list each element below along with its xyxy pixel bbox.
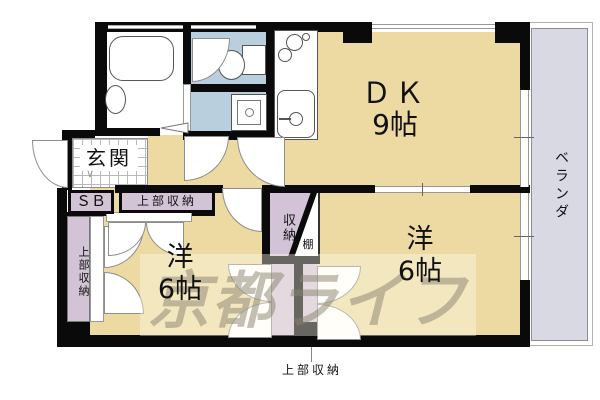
entrance-step-mark: ∨ — [82, 168, 98, 180]
shelf-label: 棚 — [299, 239, 317, 251]
wall-bath-toilet — [183, 22, 191, 84]
bath-basin — [105, 85, 126, 114]
upper-storage-left-label: 上部収納 — [68, 224, 89, 320]
wall-top-pier-left — [343, 32, 372, 43]
bathtub — [109, 36, 174, 81]
bathroom-door-icon — [158, 120, 190, 136]
dk-room-size: 9帖 — [330, 110, 460, 140]
wall-top-pier-right — [495, 32, 523, 43]
dk-top-window — [372, 24, 495, 29]
wall-bath-bottom — [95, 128, 160, 136]
veranda-label: ベランダ — [548, 126, 568, 246]
stove-pilot — [302, 33, 310, 41]
west-left-size: 6帖 — [130, 276, 230, 305]
sink-faucet — [289, 112, 303, 126]
wall-toilet-laundry — [191, 84, 268, 92]
bathroom-top-window — [108, 25, 256, 29]
wall-center-column-left — [262, 188, 270, 264]
window-tick-dk — [514, 137, 534, 138]
wall-right-upper — [520, 22, 530, 90]
west-right-label: 洋 — [370, 226, 470, 255]
sliding-door-tick — [422, 183, 423, 196]
window-tick-bedroom — [514, 236, 534, 237]
shoe-box: ＳＢ — [68, 190, 114, 214]
upper-storage-bottom-label: 上部収納 — [262, 364, 362, 377]
west-right-size: 6帖 — [370, 258, 470, 287]
stove-burner-small — [278, 48, 292, 62]
entrance-door-arc — [32, 140, 68, 188]
toilet-tank — [242, 45, 266, 75]
west-left-label: 洋 — [130, 244, 230, 273]
floor-plan: 京都ライフ ＤＫ 9帖 洋 6帖 洋 6帖 玄関 ∨ ＳＢ 上部収納 上部収納 … — [0, 0, 600, 400]
wall-left-upper — [95, 22, 107, 135]
dk-veranda-window — [520, 90, 529, 187]
wall-right-lower — [520, 280, 530, 347]
dk-room-label: ＤＫ — [330, 78, 460, 109]
closet-label: 収納 — [272, 200, 294, 256]
top-closet-door-panel — [106, 212, 192, 222]
upper-storage-leader-line — [311, 347, 312, 362]
shelf-right-edge — [318, 193, 320, 256]
washing-machine-knob — [245, 108, 254, 117]
shoe-box-label: ＳＢ — [76, 194, 106, 210]
wall-below-left-closet — [67, 322, 90, 338]
upper-storage-top-box: 上部収納 — [119, 190, 215, 213]
sink-faucet-lever — [279, 118, 291, 120]
left-closet-door-panel — [90, 216, 104, 322]
upper-storage-top-label: 上部収納 — [137, 195, 197, 208]
